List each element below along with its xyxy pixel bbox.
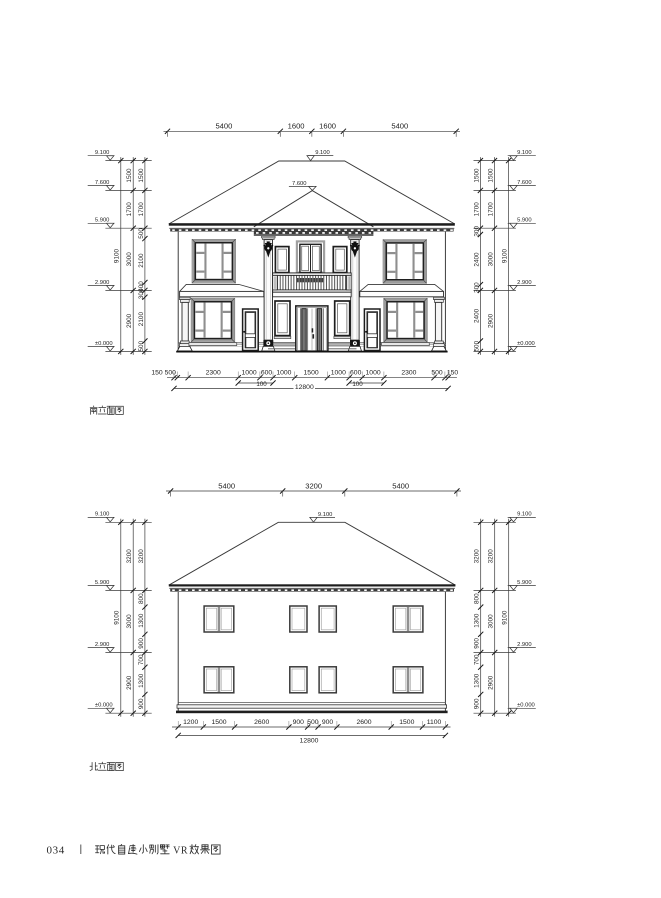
svg-text:500: 500	[138, 340, 145, 351]
svg-text:100: 100	[352, 381, 363, 388]
svg-text:9100: 9100	[114, 248, 121, 263]
svg-text:800: 800	[138, 593, 145, 604]
svg-text:150: 150	[151, 370, 163, 377]
svg-text:9100: 9100	[114, 610, 121, 625]
svg-text:900: 900	[138, 638, 145, 649]
svg-text:1000: 1000	[242, 370, 257, 377]
svg-text:700: 700	[474, 654, 481, 665]
svg-text:500: 500	[138, 228, 145, 239]
svg-text:2300: 2300	[401, 370, 416, 377]
svg-text:±0.000: ±0.000	[517, 341, 535, 347]
svg-text:1300: 1300	[138, 673, 145, 688]
svg-text:±0.000: ±0.000	[95, 341, 113, 347]
svg-text:3000: 3000	[126, 252, 133, 267]
svg-text:500: 500	[473, 340, 480, 351]
svg-text:900: 900	[322, 719, 334, 726]
svg-text:1500: 1500	[126, 168, 133, 183]
svg-text:2900: 2900	[487, 313, 494, 328]
svg-text:2900: 2900	[126, 675, 133, 690]
svg-text:2.900: 2.900	[95, 280, 110, 286]
svg-text:9100: 9100	[502, 610, 509, 625]
svg-text:5.900: 5.900	[517, 580, 532, 586]
svg-text:1700: 1700	[487, 202, 494, 217]
svg-text:900: 900	[293, 719, 305, 726]
svg-text:1700: 1700	[473, 202, 480, 217]
svg-text:9.100: 9.100	[95, 150, 110, 156]
svg-text:12800: 12800	[295, 384, 314, 391]
svg-text:5400: 5400	[392, 481, 409, 490]
svg-text:900: 900	[138, 698, 145, 709]
svg-text:900: 900	[474, 698, 481, 709]
svg-text:±0.000: ±0.000	[517, 703, 535, 709]
svg-text:2100: 2100	[138, 312, 145, 327]
svg-text:2600: 2600	[254, 719, 269, 726]
svg-text:800: 800	[474, 593, 481, 604]
svg-text:2400: 2400	[473, 252, 480, 267]
svg-text:3200: 3200	[474, 549, 481, 564]
svg-text:900: 900	[474, 638, 481, 649]
svg-text:7.600: 7.600	[517, 180, 532, 186]
svg-text:9.100: 9.100	[517, 150, 532, 156]
svg-text:1300: 1300	[474, 613, 481, 628]
svg-text:1500: 1500	[399, 719, 414, 726]
svg-text:1300: 1300	[474, 673, 481, 688]
svg-text:7.600: 7.600	[292, 181, 307, 187]
svg-text:300: 300	[138, 288, 145, 299]
svg-text:1000: 1000	[276, 370, 291, 377]
svg-text:9.100: 9.100	[517, 512, 532, 518]
svg-text:2900: 2900	[126, 313, 133, 328]
svg-text:2400: 2400	[473, 308, 480, 323]
svg-text:5400: 5400	[391, 122, 408, 131]
svg-text:2300: 2300	[206, 370, 221, 377]
svg-text:700: 700	[138, 654, 145, 665]
svg-text:1700: 1700	[126, 202, 133, 217]
svg-text:600: 600	[261, 370, 273, 377]
svg-text:500: 500	[307, 719, 319, 726]
svg-text:1500: 1500	[304, 370, 319, 377]
svg-text:1100: 1100	[427, 719, 442, 726]
svg-text:150: 150	[447, 370, 459, 377]
svg-text:5.900: 5.900	[95, 218, 110, 224]
svg-text:2.900: 2.900	[517, 642, 532, 648]
svg-text:1200: 1200	[183, 719, 198, 726]
svg-text:9.100: 9.100	[95, 512, 110, 518]
svg-text:3200: 3200	[305, 481, 322, 490]
svg-text:1000: 1000	[366, 370, 381, 377]
svg-text:5.900: 5.900	[517, 218, 532, 224]
svg-text:2100: 2100	[138, 253, 145, 268]
svg-text:2.900: 2.900	[517, 280, 532, 286]
svg-text:3200: 3200	[488, 549, 495, 564]
svg-text:1600: 1600	[319, 122, 336, 131]
svg-text:500: 500	[165, 370, 177, 377]
svg-text:5400: 5400	[215, 122, 232, 131]
svg-text:034: 034	[47, 844, 65, 856]
svg-text:3000: 3000	[488, 614, 495, 629]
svg-text:9100: 9100	[502, 248, 509, 263]
svg-text:7.600: 7.600	[95, 180, 110, 186]
svg-text:2.900: 2.900	[95, 642, 110, 648]
svg-text:1500: 1500	[487, 168, 494, 183]
svg-text:1500: 1500	[473, 168, 480, 183]
svg-text:3200: 3200	[126, 549, 133, 564]
svg-text:1500: 1500	[138, 168, 145, 183]
svg-text:5400: 5400	[218, 481, 235, 490]
svg-text:3000: 3000	[126, 614, 133, 629]
svg-text:12800: 12800	[300, 738, 319, 745]
svg-text:2900: 2900	[488, 675, 495, 690]
svg-text:9.100: 9.100	[315, 150, 330, 156]
svg-text:9.100: 9.100	[318, 512, 333, 518]
svg-text:1500: 1500	[211, 719, 226, 726]
svg-text:300: 300	[473, 226, 480, 237]
svg-text:3000: 3000	[487, 252, 494, 267]
svg-text:VR: VR	[173, 845, 188, 856]
svg-text:1000: 1000	[331, 370, 346, 377]
svg-text:5.900: 5.900	[95, 580, 110, 586]
svg-text:100: 100	[256, 381, 267, 388]
svg-text:1600: 1600	[288, 122, 305, 131]
svg-text:300: 300	[473, 282, 480, 293]
svg-text:1300: 1300	[138, 613, 145, 628]
svg-text:±0.000: ±0.000	[95, 703, 113, 709]
svg-text:500: 500	[431, 370, 443, 377]
svg-text:1700: 1700	[138, 202, 145, 217]
svg-text:2600: 2600	[356, 719, 371, 726]
svg-text:600: 600	[350, 370, 362, 377]
svg-text:3200: 3200	[138, 549, 145, 564]
